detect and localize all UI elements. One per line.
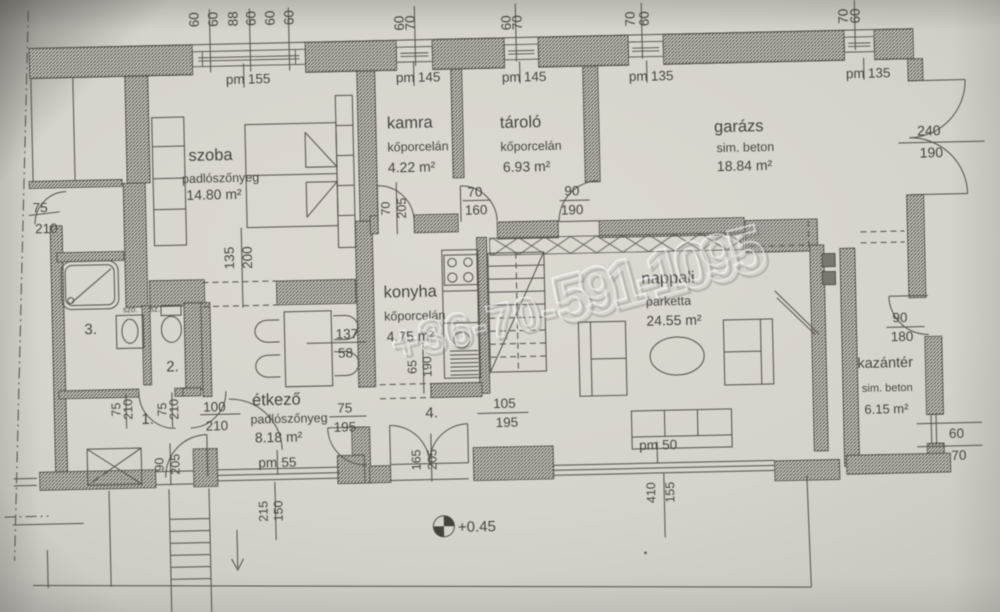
svg-text:145: 145 [418, 69, 441, 84]
svg-text:3.: 3. [84, 321, 97, 338]
svg-text:garázs: garázs [714, 117, 764, 136]
svg-text:205: 205 [168, 454, 182, 475]
svg-text:105: 105 [493, 396, 516, 411]
svg-text:210: 210 [205, 418, 228, 433]
svg-text:sim. beton: sim. beton [862, 382, 913, 395]
svg-text:padlószőnyeg: padlószőnyeg [250, 411, 327, 427]
svg-text:padlószőnyeg: padlószőnyeg [182, 170, 259, 186]
svg-text:konyha: konyha [383, 282, 437, 301]
svg-text:50: 50 [662, 437, 677, 452]
svg-text:137: 137 [335, 326, 358, 341]
svg-text:160: 160 [465, 202, 488, 217]
svg-text:60: 60 [281, 10, 296, 25]
svg-text:6.15 m²: 6.15 m² [864, 401, 909, 417]
svg-text:55: 55 [281, 455, 296, 470]
svg-text:14.80 m²: 14.80 m² [186, 186, 242, 203]
svg-text:tároló: tároló [500, 113, 542, 132]
svg-text:180: 180 [891, 329, 914, 344]
svg-text:215: 215 [256, 501, 270, 522]
svg-text:70: 70 [402, 15, 417, 30]
svg-text:18.84 m²: 18.84 m² [717, 157, 773, 174]
svg-text:pm: pm [226, 72, 245, 87]
svg-text:70: 70 [951, 448, 966, 463]
svg-text:70: 70 [510, 15, 525, 30]
svg-text:88: 88 [225, 11, 240, 26]
svg-text:195: 195 [333, 419, 356, 434]
svg-text:2.: 2. [166, 358, 179, 375]
svg-text:60: 60 [847, 8, 862, 23]
svg-text:100: 100 [203, 399, 226, 414]
svg-text:kazántér: kazántér [857, 355, 913, 372]
svg-text:155: 155 [663, 482, 677, 503]
svg-text:135: 135 [651, 68, 674, 83]
svg-text:90: 90 [152, 457, 166, 471]
svg-text:60: 60 [949, 426, 964, 441]
svg-text:étkező: étkező [252, 390, 301, 409]
svg-text:210: 210 [121, 399, 135, 420]
svg-text:pm: pm [502, 69, 521, 84]
svg-text:145: 145 [524, 69, 547, 84]
svg-text:70: 70 [467, 184, 482, 199]
svg-text:60: 60 [205, 12, 220, 27]
svg-text:pm: pm [396, 70, 415, 85]
svg-text:205: 205 [425, 449, 439, 470]
svg-text:70: 70 [622, 11, 637, 26]
svg-text:sző.: sző. [123, 305, 138, 314]
svg-text:150: 150 [271, 500, 285, 521]
svg-text:4.22 m²: 4.22 m² [388, 158, 436, 175]
svg-text:135: 135 [868, 65, 891, 80]
svg-text:pm: pm [629, 69, 648, 84]
svg-text:pm: pm [258, 455, 277, 470]
svg-text:165: 165 [409, 449, 423, 470]
svg-text:195: 195 [495, 415, 518, 430]
svg-text:pm: pm [639, 438, 658, 453]
svg-text:155: 155 [248, 71, 271, 86]
svg-text:kamra: kamra [387, 113, 434, 132]
svg-text:75: 75 [33, 200, 48, 215]
svg-text:sim. beton: sim. beton [716, 140, 774, 155]
svg-text:135: 135 [222, 247, 237, 270]
svg-text:210: 210 [35, 221, 58, 236]
svg-text:60: 60 [262, 10, 277, 25]
svg-text:75: 75 [337, 400, 352, 415]
svg-text:kőporcelán: kőporcelán [387, 139, 448, 154]
svg-text:60: 60 [243, 11, 258, 26]
svg-text:200: 200 [240, 246, 255, 269]
svg-text:205: 205 [395, 198, 409, 219]
svg-text:410: 410 [644, 482, 658, 503]
svg-text:58: 58 [338, 345, 353, 360]
svg-text:190: 190 [561, 202, 584, 217]
svg-text:190: 190 [919, 144, 943, 161]
svg-text:60: 60 [636, 11, 651, 26]
svg-text:6.93 m²: 6.93 m² [503, 158, 551, 175]
svg-text:240: 240 [917, 122, 941, 139]
svg-text:sz.: sz. [150, 305, 160, 314]
svg-text:4.: 4. [425, 404, 438, 421]
svg-text:70: 70 [379, 201, 393, 215]
svg-text:90: 90 [892, 310, 907, 325]
svg-text:1.: 1. [141, 411, 154, 428]
svg-text:60: 60 [186, 12, 201, 27]
svg-text:szoba: szoba [188, 146, 233, 165]
svg-text:+0.45: +0.45 [458, 518, 496, 536]
svg-text:8.18 m²: 8.18 m² [255, 428, 303, 445]
svg-text:pm: pm [846, 66, 865, 81]
svg-text:kőporcelán: kőporcelán [500, 139, 561, 154]
svg-text:90: 90 [564, 183, 579, 198]
svg-text:210: 210 [167, 399, 181, 420]
